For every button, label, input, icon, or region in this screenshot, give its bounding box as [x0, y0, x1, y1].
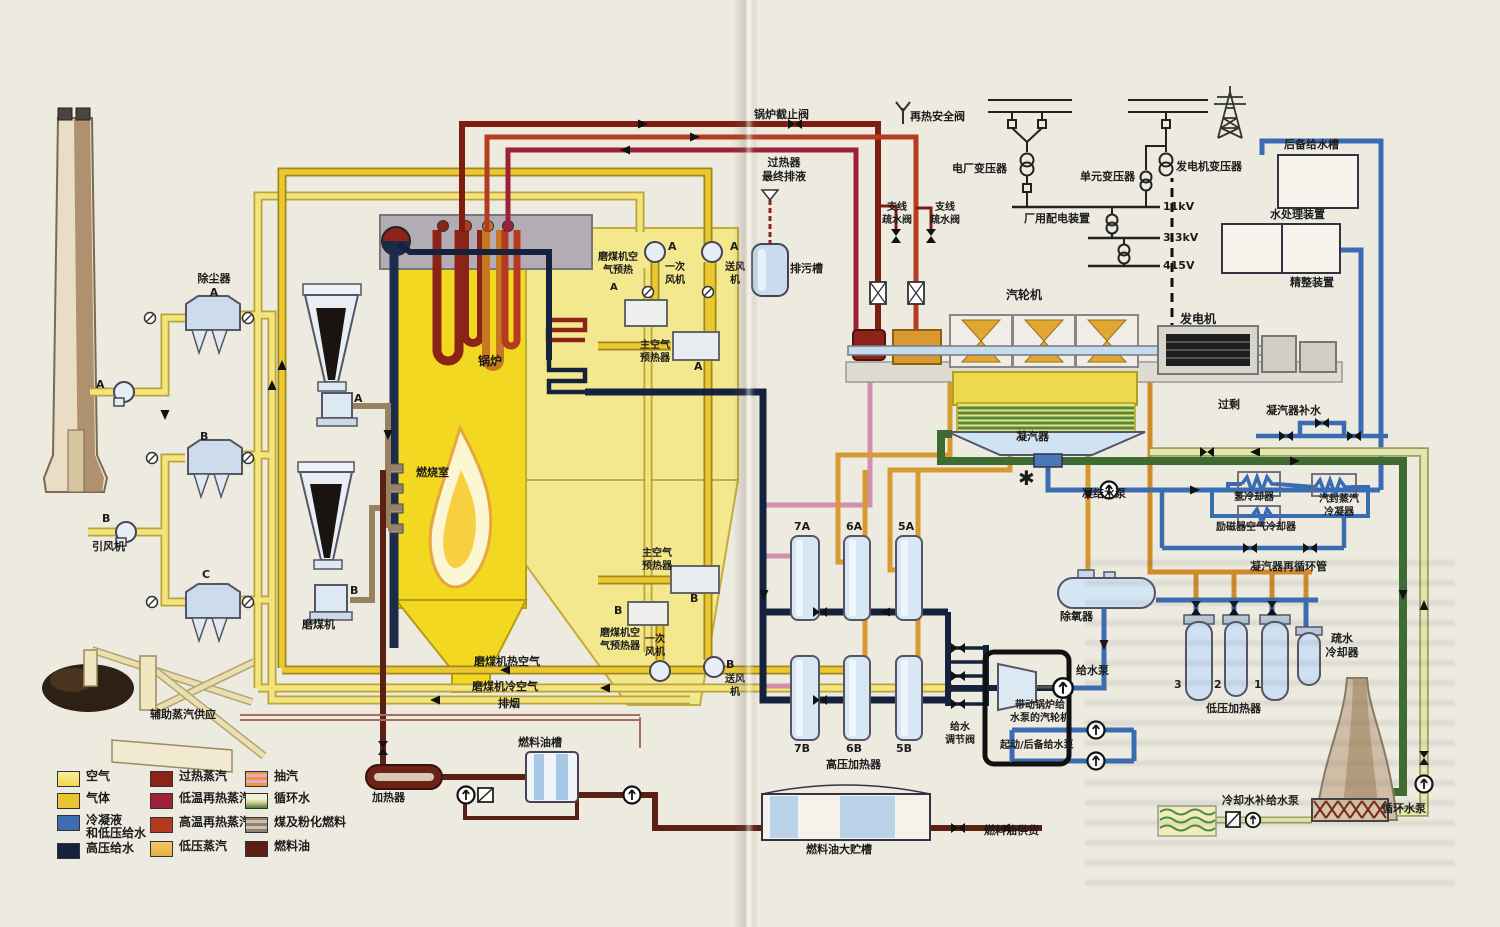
excess-label: 过剩 [1218, 398, 1240, 412]
mill-air-preheat-a-letter: A [610, 282, 618, 295]
hp6a-label: 6A [846, 520, 862, 534]
lp-heaters [1184, 615, 1322, 700]
polishing-unit-label: 精整装置 [1290, 276, 1334, 290]
main-aph-b-letter: B [690, 592, 698, 606]
legend-item: 抽汽 [245, 770, 298, 787]
generator-label: 发电机 [1180, 312, 1216, 327]
mill-label: 磨煤机 [302, 618, 335, 632]
legend-item: 冷凝液 和低压给水 [57, 814, 146, 840]
branch-drain-valve-1-label: 支线 疏水阀 [874, 202, 920, 227]
unit-transformer-label: 单元变压器 [1080, 170, 1135, 184]
hp-heaters [791, 536, 922, 740]
legend-label: 煤及粉化燃料 [274, 816, 346, 829]
pa-fan-a-label: 一次 风机 [662, 262, 688, 287]
legend-item: 燃料油 [245, 840, 310, 857]
id-fan-a-letter: A [96, 378, 105, 392]
aux-steam-label: 辅助蒸汽供应 [150, 708, 216, 722]
gland-steam-condenser-label: 汽封蒸汽 冷凝器 [1310, 494, 1368, 519]
mill-b-letter: B [350, 584, 358, 598]
dust-collectors [186, 296, 242, 641]
legend-label: 燃料油 [274, 840, 310, 853]
legend-label: 高温再热蒸汽 [179, 816, 251, 829]
lp3-label: 3 [1174, 678, 1182, 692]
legend-swatch-air [57, 771, 80, 787]
legend-item: 过热蒸汽 [150, 770, 227, 787]
startup-backup-pump-label: 起动/后备给水泵 [1000, 740, 1074, 753]
bfp-turbine-label: 带动锅炉给 水泵的汽轮机 [998, 700, 1082, 725]
legend-label: 冷凝液 和低压给水 [86, 814, 146, 840]
voltage-3-3kv-label: 3.3kV [1163, 231, 1198, 245]
legend-swatch-circulating [245, 793, 268, 809]
hp-heaters-label: 高压加热器 [826, 758, 881, 772]
id-fan-label: 引风机 [92, 540, 125, 554]
cooling-makeup-pump-label: 冷却水补给水泵 [1222, 794, 1299, 808]
mill-cold-air-label: 磨煤机冷空气 [472, 680, 538, 694]
lp1-label: 1 [1254, 678, 1262, 692]
legend-label: 抽汽 [274, 770, 298, 783]
voltage-11kv-label: 11kV [1163, 200, 1194, 214]
legend-item: 低温再热蒸汽 [150, 792, 251, 809]
superheater-drain-label: 过热器 最终排液 [756, 156, 812, 184]
legend-label: 循环水 [274, 792, 310, 805]
chimney [44, 108, 107, 492]
circ-pump-label: 循环水泵 [1382, 802, 1426, 816]
boiler-label: 锅炉 [478, 354, 502, 369]
main-aph-a-label: 主空气 预热器 [634, 340, 676, 365]
legend-label: 高压给水 [86, 842, 134, 855]
hp7a-label: 7A [794, 520, 810, 534]
hp6b-label: 6B [846, 742, 862, 756]
plant-distribution-label: 厂用配电装置 [1024, 212, 1090, 226]
oil-heater-label: 加热器 [372, 791, 405, 805]
mill-aph-b-letter: B [614, 604, 622, 618]
legend-swatch-coal [245, 817, 268, 833]
pa-fan-a-letter: A [668, 240, 677, 254]
legend-swatch-condensate [57, 815, 80, 831]
legend-label: 空气 [86, 770, 110, 783]
legend-swatch-gas [57, 793, 80, 809]
cooling-tower [1312, 678, 1397, 821]
fuel-oil-storage-label: 燃料油大贮槽 [806, 843, 872, 857]
hp7b-label: 7B [794, 742, 810, 756]
legend-swatch-fuel-oil [245, 841, 268, 857]
water-source [1158, 806, 1240, 836]
legend-item: 空气 [57, 770, 110, 787]
blowdown-tank-label: 排污槽 [790, 262, 823, 276]
lp2-label: 2 [1214, 678, 1222, 692]
dust-collector-c-label: C [202, 568, 210, 582]
legend-swatch-reheat-low [150, 793, 173, 809]
asterisk-mark: ✱ [1018, 466, 1035, 491]
hydrogen-cooler-label: 氢冷却器 [1234, 492, 1274, 505]
fuel-oil-supply-label: 燃料油供货 [984, 824, 1039, 838]
legend-item: 高温再热蒸汽 [150, 816, 251, 833]
condenser-recirc-label: 凝汽器再循环管 [1250, 560, 1327, 574]
condenser-makeup-label: 凝汽器补水 [1266, 404, 1321, 418]
fd-fan-a-label: 送风 机 [722, 262, 748, 287]
boiler-stop-valve-label: 锅炉截止阀 [754, 108, 809, 122]
backup-feedwater-tank-label: 后备给水槽 [1284, 138, 1339, 152]
deaerator [1058, 570, 1155, 608]
blowdown-tank [752, 190, 788, 296]
flue-exhaust-label: 排烟 [498, 697, 520, 711]
legend-item: 循环水 [245, 792, 310, 809]
mill-aph-b-label: 磨煤机空 气预热器 [592, 628, 648, 653]
feed-pump-label: 给水泵 [1076, 664, 1109, 678]
legend-swatch-reheat-high [150, 817, 173, 833]
water-treatment-label: 水处理装置 [1270, 208, 1325, 222]
main-aph-a-letter: A [694, 360, 703, 374]
combustion-chamber-label: 燃烧室 [416, 466, 449, 480]
fuel-oil-tank-label: 燃料油槽 [518, 736, 562, 750]
power-plant-diagram: 除尘器 A B C A B 引风机 A B 磨煤机 辅助蒸汽供应 锅炉 燃烧室 … [0, 0, 1500, 927]
legend-swatch-superheated [150, 771, 173, 787]
mill-air-preheat-a-label: 磨煤机空 气预热 [592, 252, 644, 277]
main-aph-b-label: 主空气 预热器 [636, 548, 678, 573]
pa-fan-b-label: 一次 风机 [642, 634, 668, 659]
lp-heaters-label: 低压加热器 [1206, 702, 1261, 716]
generator-transformer-label: 发电机变压器 [1176, 160, 1242, 174]
fd-fan-b-letter: B [726, 658, 734, 672]
fw-reg-valve-label: 给水 调节阀 [938, 722, 982, 747]
fd-fan-a-letter: A [730, 240, 739, 254]
turbine-label: 汽轮机 [1006, 288, 1042, 303]
legend-label: 过热蒸汽 [179, 770, 227, 783]
coal-hoppers-mills [298, 284, 361, 620]
legend-label: 低压蒸汽 [179, 840, 227, 853]
deaerator-label: 除氧器 [1060, 610, 1093, 624]
voltage-415v-label: 415V [1163, 259, 1194, 273]
dust-collector-b-label: B [200, 430, 208, 444]
condensate-pump-label: 凝结水泵 [1082, 487, 1126, 501]
boiler [380, 215, 738, 705]
legend-swatch-lp-steam [150, 841, 173, 857]
hp5a-label: 5A [898, 520, 914, 534]
condenser-label: 凝汽器 [1016, 430, 1049, 444]
legend-item: 煤及粉化燃料 [245, 816, 346, 833]
drain-cooler-label: 疏水 冷却器 [1318, 632, 1366, 660]
diagram-canvas [0, 0, 1500, 927]
plant-transformer-label: 电厂变压器 [952, 162, 1007, 176]
legend-swatch-extraction [245, 771, 268, 787]
id-fans [114, 382, 136, 546]
exciter-air-cooler-label: 励磁器空气冷却器 [1216, 522, 1296, 535]
legend-label: 低温再热蒸汽 [179, 792, 251, 805]
legend-item: 高压给水 [57, 842, 134, 859]
mill-a-letter: A [354, 392, 363, 406]
legend-item: 气体 [57, 792, 110, 809]
id-fan-b-letter: B [102, 512, 110, 526]
dust-collector-a-label: 除尘器 A [188, 272, 240, 300]
aux-steam-lines [240, 715, 640, 748]
fd-fan-b-label: 送风 机 [722, 674, 748, 699]
hp5b-label: 5B [896, 742, 912, 756]
reheat-safety-valve-label: 再热安全阀 [910, 110, 965, 124]
mill-hot-air-label: 磨煤机热空气 [474, 655, 540, 669]
branch-drain-valve-2-label: 支线 疏水阀 [922, 202, 968, 227]
legend-label: 气体 [86, 792, 110, 805]
transmission-tower-icon [1214, 86, 1246, 138]
legend-swatch-hp-feedwater [57, 843, 80, 859]
legend-item: 低压蒸汽 [150, 840, 227, 857]
turbine-generator [846, 315, 1342, 405]
